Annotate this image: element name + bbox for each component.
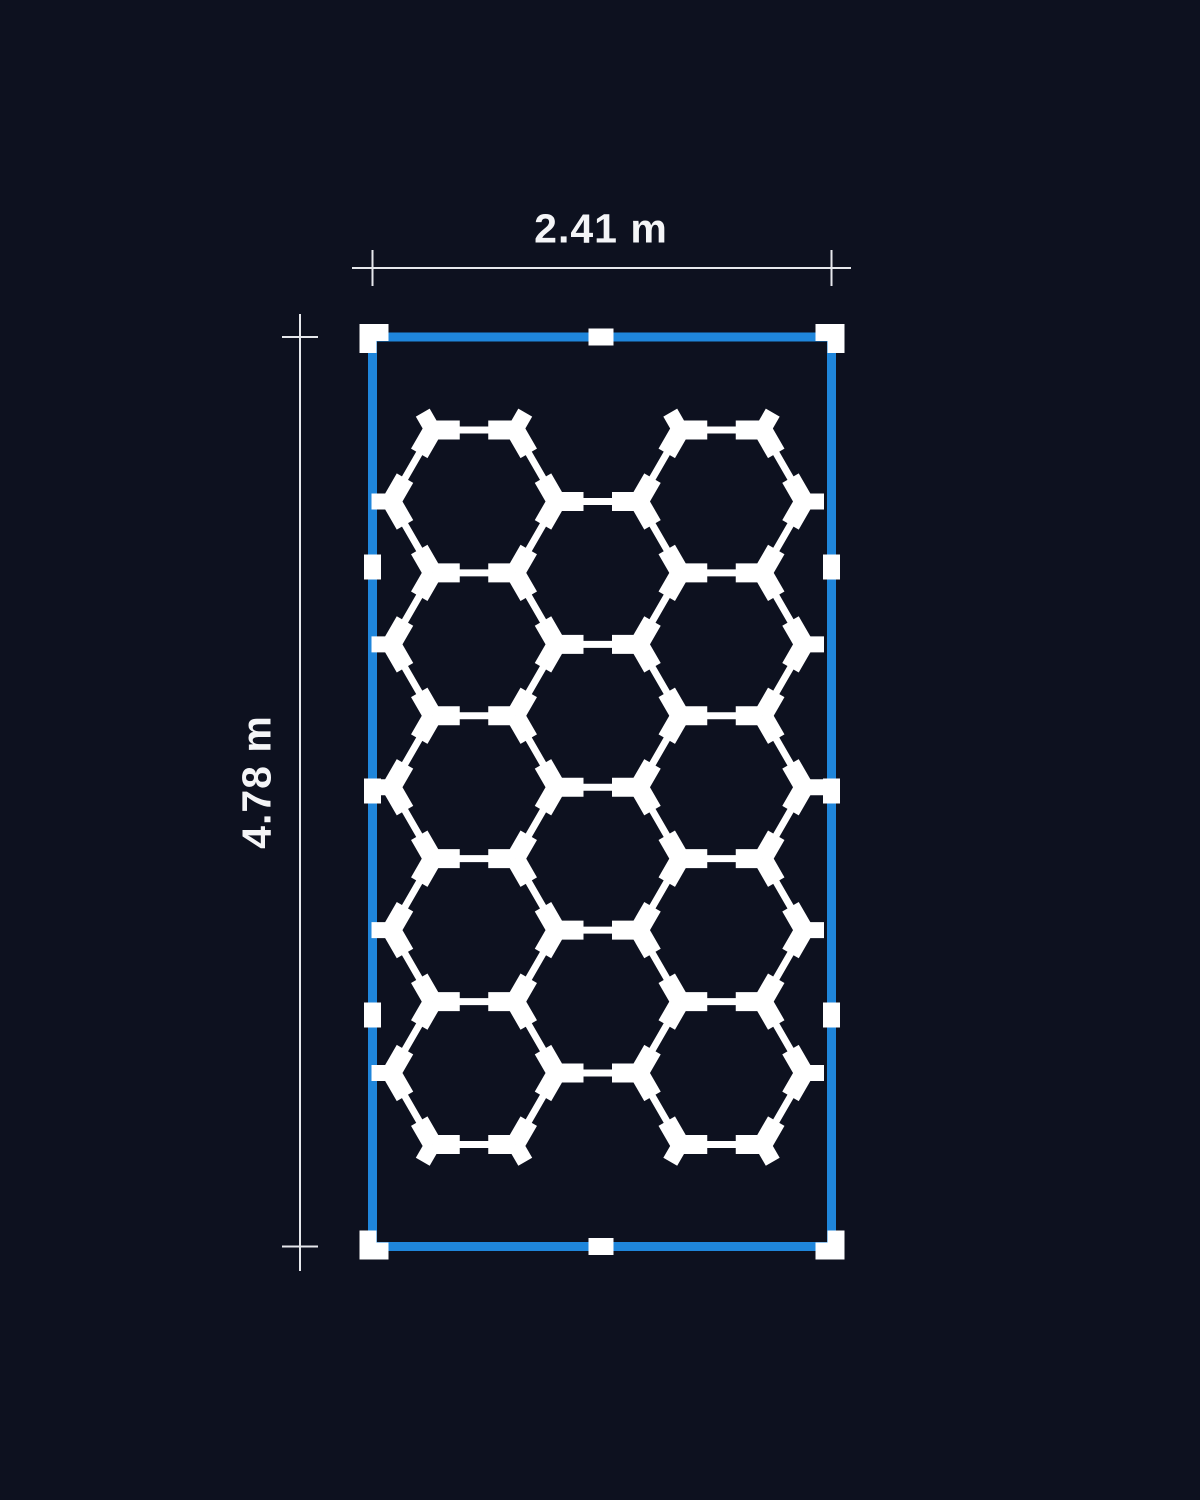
vertex-connector-arm bbox=[392, 1073, 406, 1096]
vertex-connector-arm bbox=[392, 644, 406, 667]
frame-corner-top-right bbox=[816, 324, 845, 353]
frame-mid-connector-top bbox=[589, 329, 614, 346]
frame-mid-connector-left bbox=[364, 1003, 381, 1028]
vertex-connector-arm bbox=[419, 573, 433, 596]
frame-corner-bottom-left bbox=[360, 1231, 389, 1260]
vertex-connector-arm bbox=[515, 573, 529, 596]
vertex-connector-arm bbox=[791, 1073, 805, 1096]
vertex-connector-tip bbox=[763, 1144, 773, 1161]
frame-corner-top-left bbox=[360, 324, 389, 353]
frame-mid-connector-right bbox=[823, 1003, 840, 1028]
vertex-connector-arm bbox=[515, 1002, 529, 1025]
vertex-connector-arm bbox=[515, 859, 529, 882]
vertex-connector-arm bbox=[419, 859, 433, 882]
vertex-connector-arm bbox=[392, 787, 406, 810]
frame-mid-connector-bottom bbox=[589, 1238, 614, 1255]
vertex-connector-arm bbox=[392, 501, 406, 524]
vertex-connector-arm bbox=[763, 573, 777, 596]
vertex-connector-arm bbox=[543, 787, 557, 810]
vertex-connector-arm bbox=[667, 430, 681, 453]
vertex-connector-arm bbox=[543, 644, 557, 667]
vertex-connector-arm bbox=[667, 859, 681, 882]
frame-mid-connector-right bbox=[823, 555, 840, 580]
vertex-connector-arm bbox=[639, 1073, 653, 1096]
vertex-connector-arm bbox=[791, 501, 805, 524]
vertex-connector-arm bbox=[791, 930, 805, 953]
frame-mid-connector-right bbox=[823, 779, 840, 804]
vertex-connector-arm bbox=[639, 787, 653, 810]
vertex-connector-arm bbox=[419, 430, 433, 453]
vertex-connector-arm bbox=[763, 430, 777, 453]
vertex-connector-arm bbox=[667, 573, 681, 596]
vertex-connector-arm bbox=[543, 1073, 557, 1096]
vertex-connector-arm bbox=[543, 930, 557, 953]
frame-border bbox=[373, 337, 832, 1247]
vertex-connector-tip bbox=[423, 1144, 433, 1161]
vertex-connector-arm bbox=[639, 930, 653, 953]
vertex-connector-arm bbox=[419, 1002, 433, 1025]
height-dimension-label: 4.78 m bbox=[234, 715, 281, 849]
vertex-connector-arm bbox=[763, 1002, 777, 1025]
frame-mid-connector-left bbox=[364, 555, 381, 580]
frame-corner-bottom-right bbox=[816, 1231, 845, 1260]
vertex-connector-arm bbox=[791, 644, 805, 667]
vertex-connector-arm bbox=[667, 716, 681, 739]
vertex-connector-arm bbox=[515, 430, 529, 453]
vertex-connector-arm bbox=[392, 930, 406, 953]
vertex-connector-arm bbox=[763, 716, 777, 739]
vertex-connector-tip bbox=[670, 1144, 680, 1161]
vertex-connector-arm bbox=[543, 501, 557, 524]
vertex-connector-arm bbox=[419, 716, 433, 739]
vertex-connector-arm bbox=[639, 644, 653, 667]
vertex-connector-arm bbox=[763, 859, 777, 882]
width-dimension-label: 2.41 m bbox=[534, 206, 668, 253]
layout-diagram-canvas: 2.41 m 4.78 m bbox=[0, 0, 1200, 1500]
vertex-connector-arm bbox=[667, 1002, 681, 1025]
frame-mid-connector-left bbox=[364, 779, 381, 804]
vertex-connector-arm bbox=[515, 716, 529, 739]
vertex-connector-arm bbox=[791, 787, 805, 810]
vertex-connector-arm bbox=[639, 501, 653, 524]
vertex-connector-tip bbox=[515, 1144, 525, 1161]
